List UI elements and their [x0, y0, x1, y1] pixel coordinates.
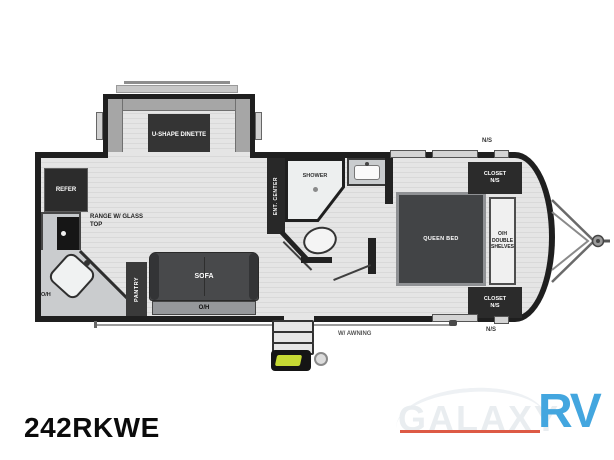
model-number: 242RKWE — [24, 412, 160, 444]
window-bedroom-top — [432, 150, 478, 158]
awning-rail-end-right — [449, 320, 457, 326]
a-frame-hitch-icon — [546, 186, 612, 296]
burner-knob-icon — [61, 231, 66, 236]
bath-faucet-icon — [365, 162, 369, 166]
window-bath-top — [390, 150, 426, 158]
awning-label: W/ AWNING — [338, 331, 371, 337]
nightstand-marker-tab-bottom — [494, 316, 509, 324]
pantry: PANTRY — [126, 262, 147, 316]
nightstand-marker-tab-top — [494, 150, 509, 158]
nightstand-marker-label-bottom: N/S — [486, 327, 496, 333]
slide-topper-line — [124, 81, 230, 84]
watermark-underline — [400, 430, 540, 433]
slide-out-dinette: U-SHAPE DINETTE — [103, 94, 255, 158]
watermark-rv: RV — [538, 388, 600, 436]
entry-steps — [272, 322, 314, 349]
nightstand-marker-label-top: N/S — [482, 138, 492, 144]
bath-wall-bottom — [301, 257, 332, 263]
bedroom-wall-lower — [368, 238, 376, 274]
sofa-arm-left — [150, 253, 159, 300]
sofa-arm-right — [249, 253, 258, 300]
dinette-bench-left — [108, 99, 123, 158]
bath-wall-right — [385, 158, 393, 204]
slide-tab-left — [96, 112, 103, 140]
sofa: SOFA — [149, 252, 259, 301]
slide-roof — [116, 85, 238, 93]
range-label: RANGE W/ GLASS TOP — [90, 214, 146, 229]
closet-front-top: CLOSET N/S — [468, 162, 522, 194]
ent-center-wall: ENT. CENTER — [267, 158, 285, 234]
watermark-galaxy: GALAXY — [398, 398, 560, 440]
pantry-label: PANTRY — [134, 277, 140, 302]
kitchen-oh-label: O/H — [41, 292, 51, 298]
bath-sink — [347, 158, 387, 186]
solar-badge-mark — [275, 355, 302, 366]
queen-bed: QUEEN BED — [396, 192, 486, 286]
solar-badge — [271, 350, 311, 371]
sofa-oh-cabinet: O/H — [152, 301, 256, 315]
oh-double-shelves: O/H DOUBLE SHELVES — [489, 197, 516, 285]
dinette-bench-top — [123, 99, 235, 111]
awning-rail-end-left — [94, 321, 97, 328]
slide-tab-right — [255, 112, 262, 140]
refrigerator: REFER — [44, 168, 88, 212]
dinette-bench-right — [235, 99, 250, 158]
power-inlet-icon — [314, 352, 328, 366]
bath-sink-bowl — [354, 165, 380, 180]
slide-opening-patch — [108, 152, 250, 160]
shower-label: SHOWER — [288, 173, 342, 179]
shower-drain-icon — [313, 187, 318, 192]
range-cooktop — [57, 217, 79, 251]
ent-center-label: ENT. CENTER — [273, 177, 279, 215]
floorplan-canvas: U-SHAPE DINETTE REFER RANGE W/ GLASS TOP… — [0, 0, 614, 460]
faucet-icon — [84, 260, 90, 266]
sofa-seam — [204, 257, 205, 296]
